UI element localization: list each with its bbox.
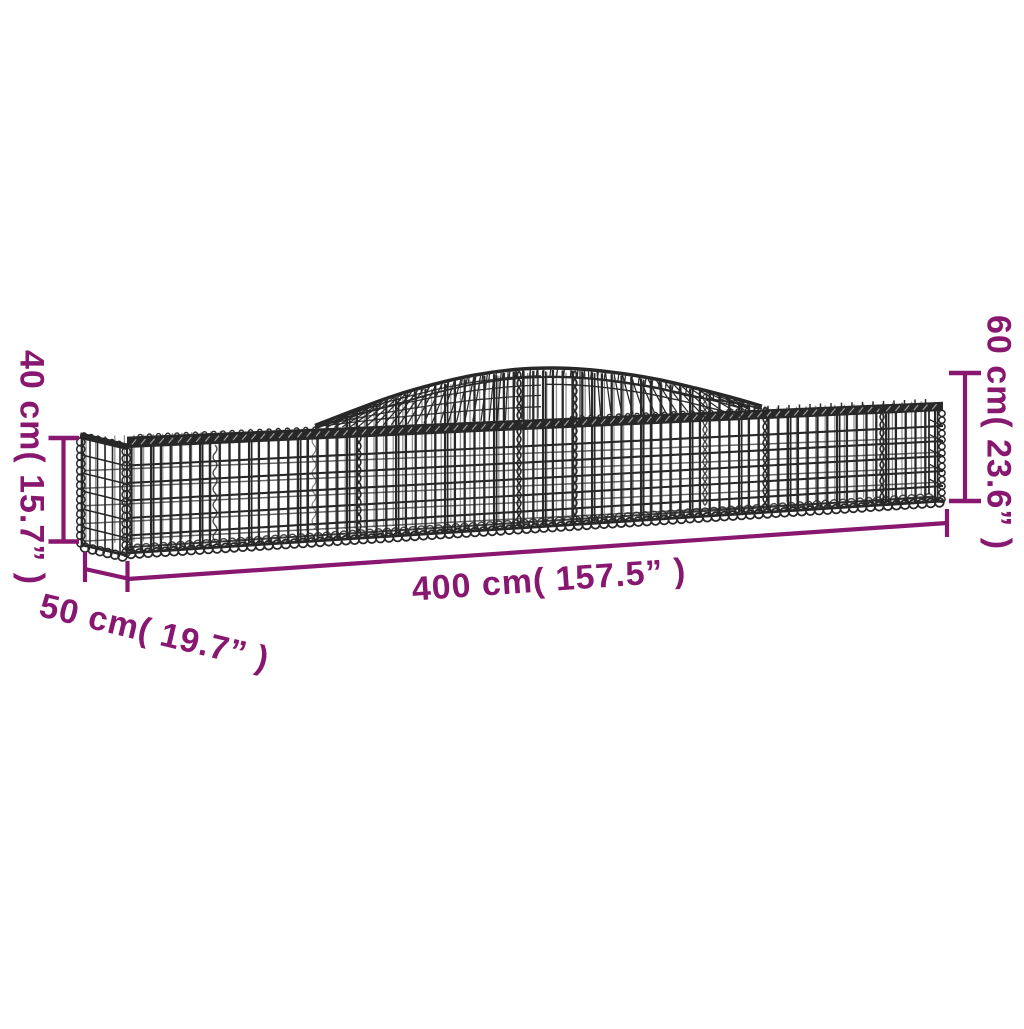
svg-text:40 cm( 15.7” ): 40 cm( 15.7” ) <box>13 350 51 585</box>
svg-text:60 cm( 23.6” ): 60 cm( 23.6” ) <box>980 315 1018 550</box>
svg-text:400 cm( 157.5” ): 400 cm( 157.5” ) <box>411 551 688 608</box>
svg-text:50 cm( 19.7” ): 50 cm( 19.7” ) <box>36 587 273 679</box>
